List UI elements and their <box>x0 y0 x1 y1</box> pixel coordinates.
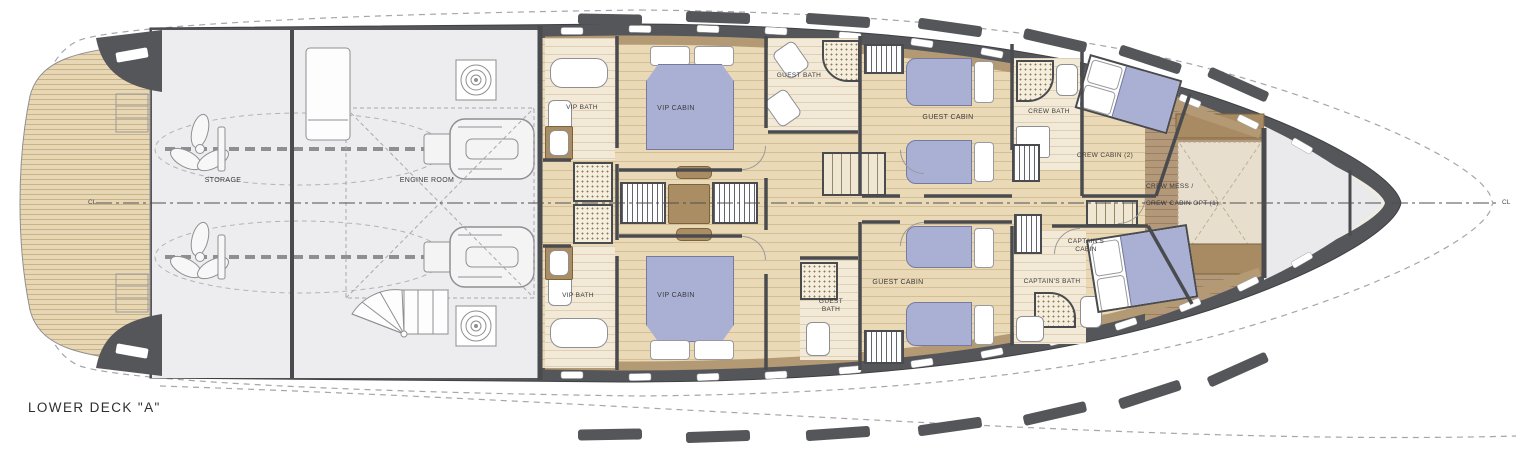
captains-cabin-label: CAPTAIN'S CABIN <box>1056 238 1116 255</box>
guest-bath-bottom-label: GUEST BATH <box>810 298 852 315</box>
crew-mess-line2: CREW CABIN OPT (1) <box>1146 200 1219 207</box>
engine-room-label: ENGINE ROOM <box>377 176 477 185</box>
lower-deck-floorplan: STORAGE ENGINE ROOM VIP BATH VIP CABIN G… <box>0 0 1520 454</box>
captains-bath-label: CAPTAIN'S BATH <box>1022 278 1082 286</box>
centerline-label-right: CL <box>1502 199 1510 206</box>
crew-cabin-2-label: CREW CABIN (2) <box>1070 152 1140 160</box>
deck-title: LOWER DECK "A" <box>28 400 161 415</box>
crew-bath-label: CREW BATH <box>1028 108 1070 116</box>
vip-cabin-top-label: VIP CABIN <box>626 104 726 113</box>
crew-mess-line1: CREW MESS / <box>1146 183 1194 190</box>
centerline-label-left: CL <box>88 199 96 206</box>
vip-bath-bottom-label: VIP BATH <box>548 292 608 300</box>
vip-bath-top-label: VIP BATH <box>552 104 612 112</box>
labels-layer: STORAGE ENGINE ROOM VIP BATH VIP CABIN G… <box>0 0 1520 454</box>
crew-mess-label: CREW MESS / CREW CABIN OPT (1) <box>1146 183 1238 208</box>
guest-cabin-top-label: GUEST CABIN <box>898 113 998 122</box>
guest-cabin-bottom-label: GUEST CABIN <box>848 278 948 287</box>
storage-label: STORAGE <box>188 176 258 185</box>
vip-cabin-bottom-label: VIP CABIN <box>626 291 726 300</box>
guest-bath-top-label: GUEST BATH <box>759 72 839 80</box>
